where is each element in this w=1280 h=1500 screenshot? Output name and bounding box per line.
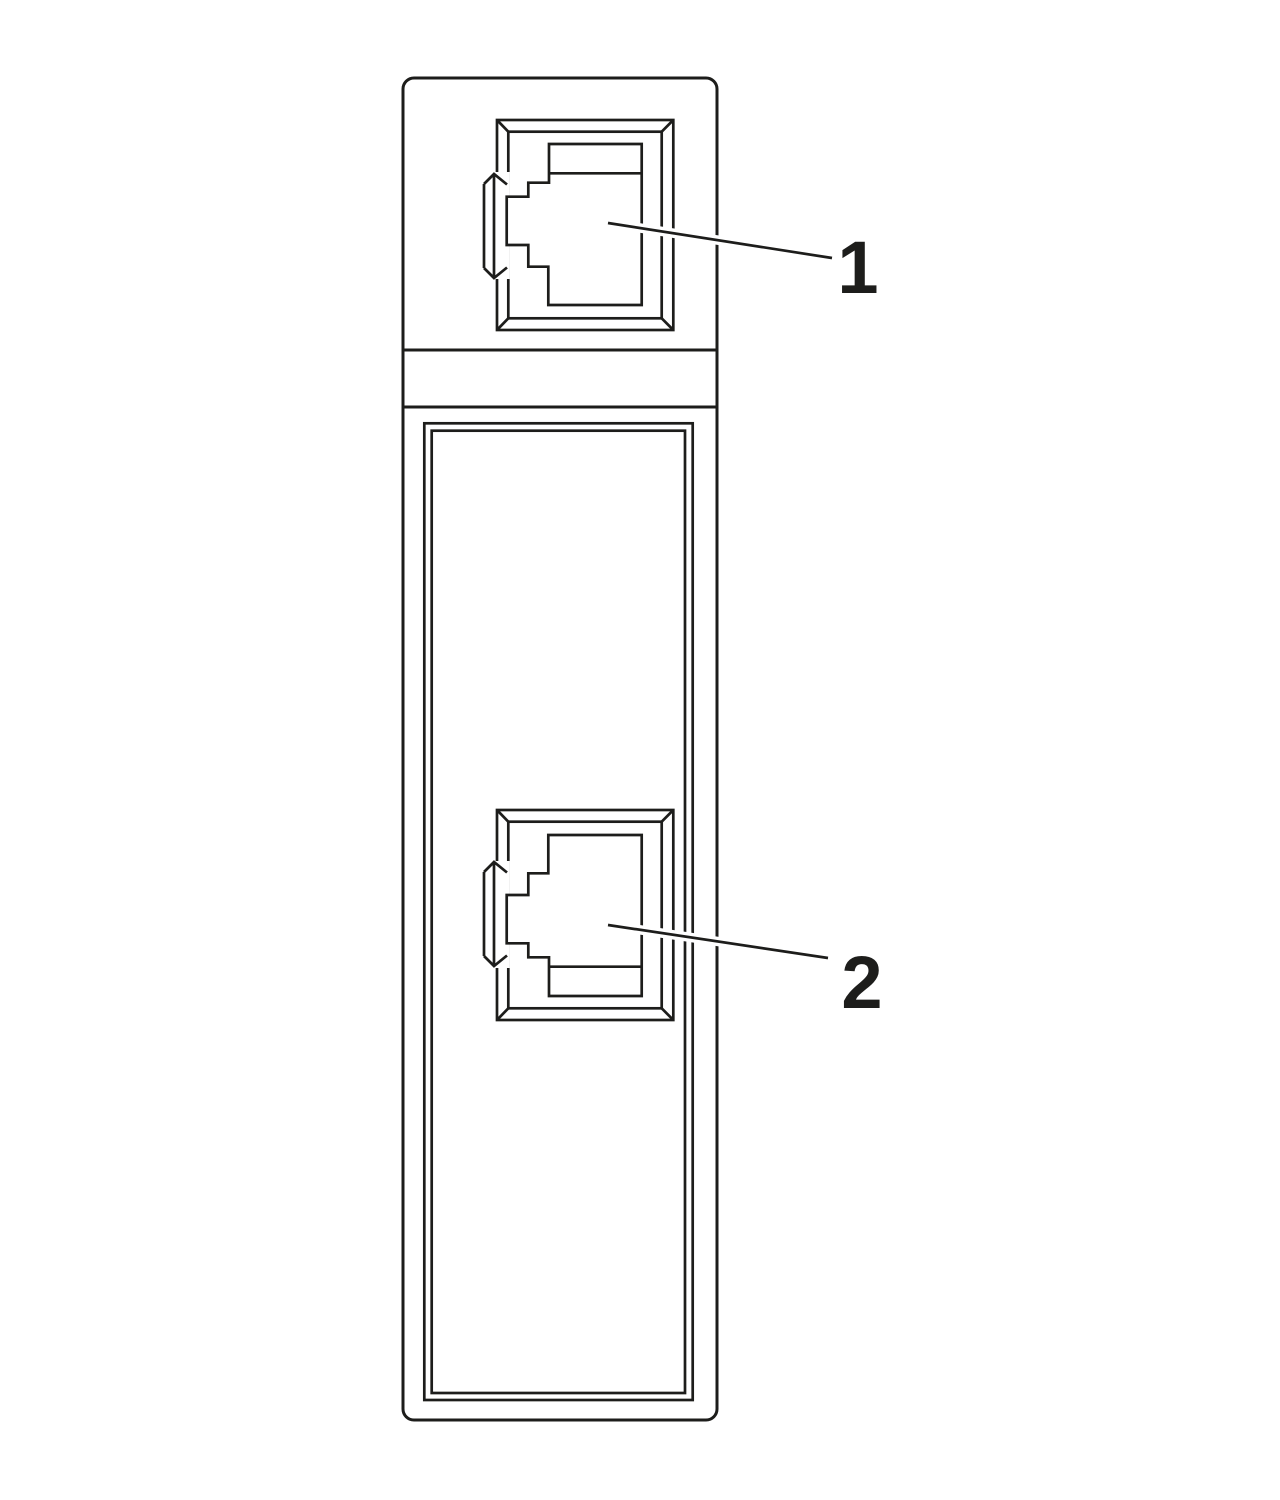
rj45-ports-line-diagram: 1 2 xyxy=(0,0,1280,1500)
diagram-canvas: 1 2 xyxy=(0,0,1280,1500)
callout-label-2: 2 xyxy=(841,941,882,1024)
callout-label-1: 1 xyxy=(837,226,878,309)
lower-rj45-port xyxy=(482,810,673,1020)
